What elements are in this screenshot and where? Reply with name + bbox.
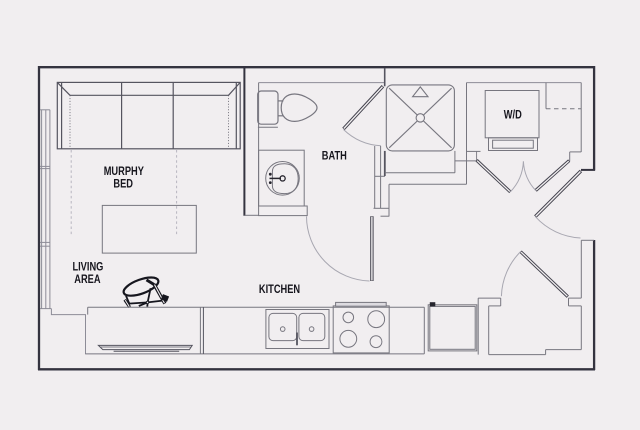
svg-text:KITCHEN: KITCHEN (259, 283, 300, 296)
svg-text:AREA: AREA (74, 273, 101, 286)
svg-text:W/D: W/D (504, 109, 522, 122)
svg-text:LIVING: LIVING (72, 260, 103, 273)
svg-text:BED: BED (113, 177, 133, 190)
svg-text:MURPHY: MURPHY (104, 165, 144, 178)
svg-text:BATH: BATH (322, 150, 347, 163)
